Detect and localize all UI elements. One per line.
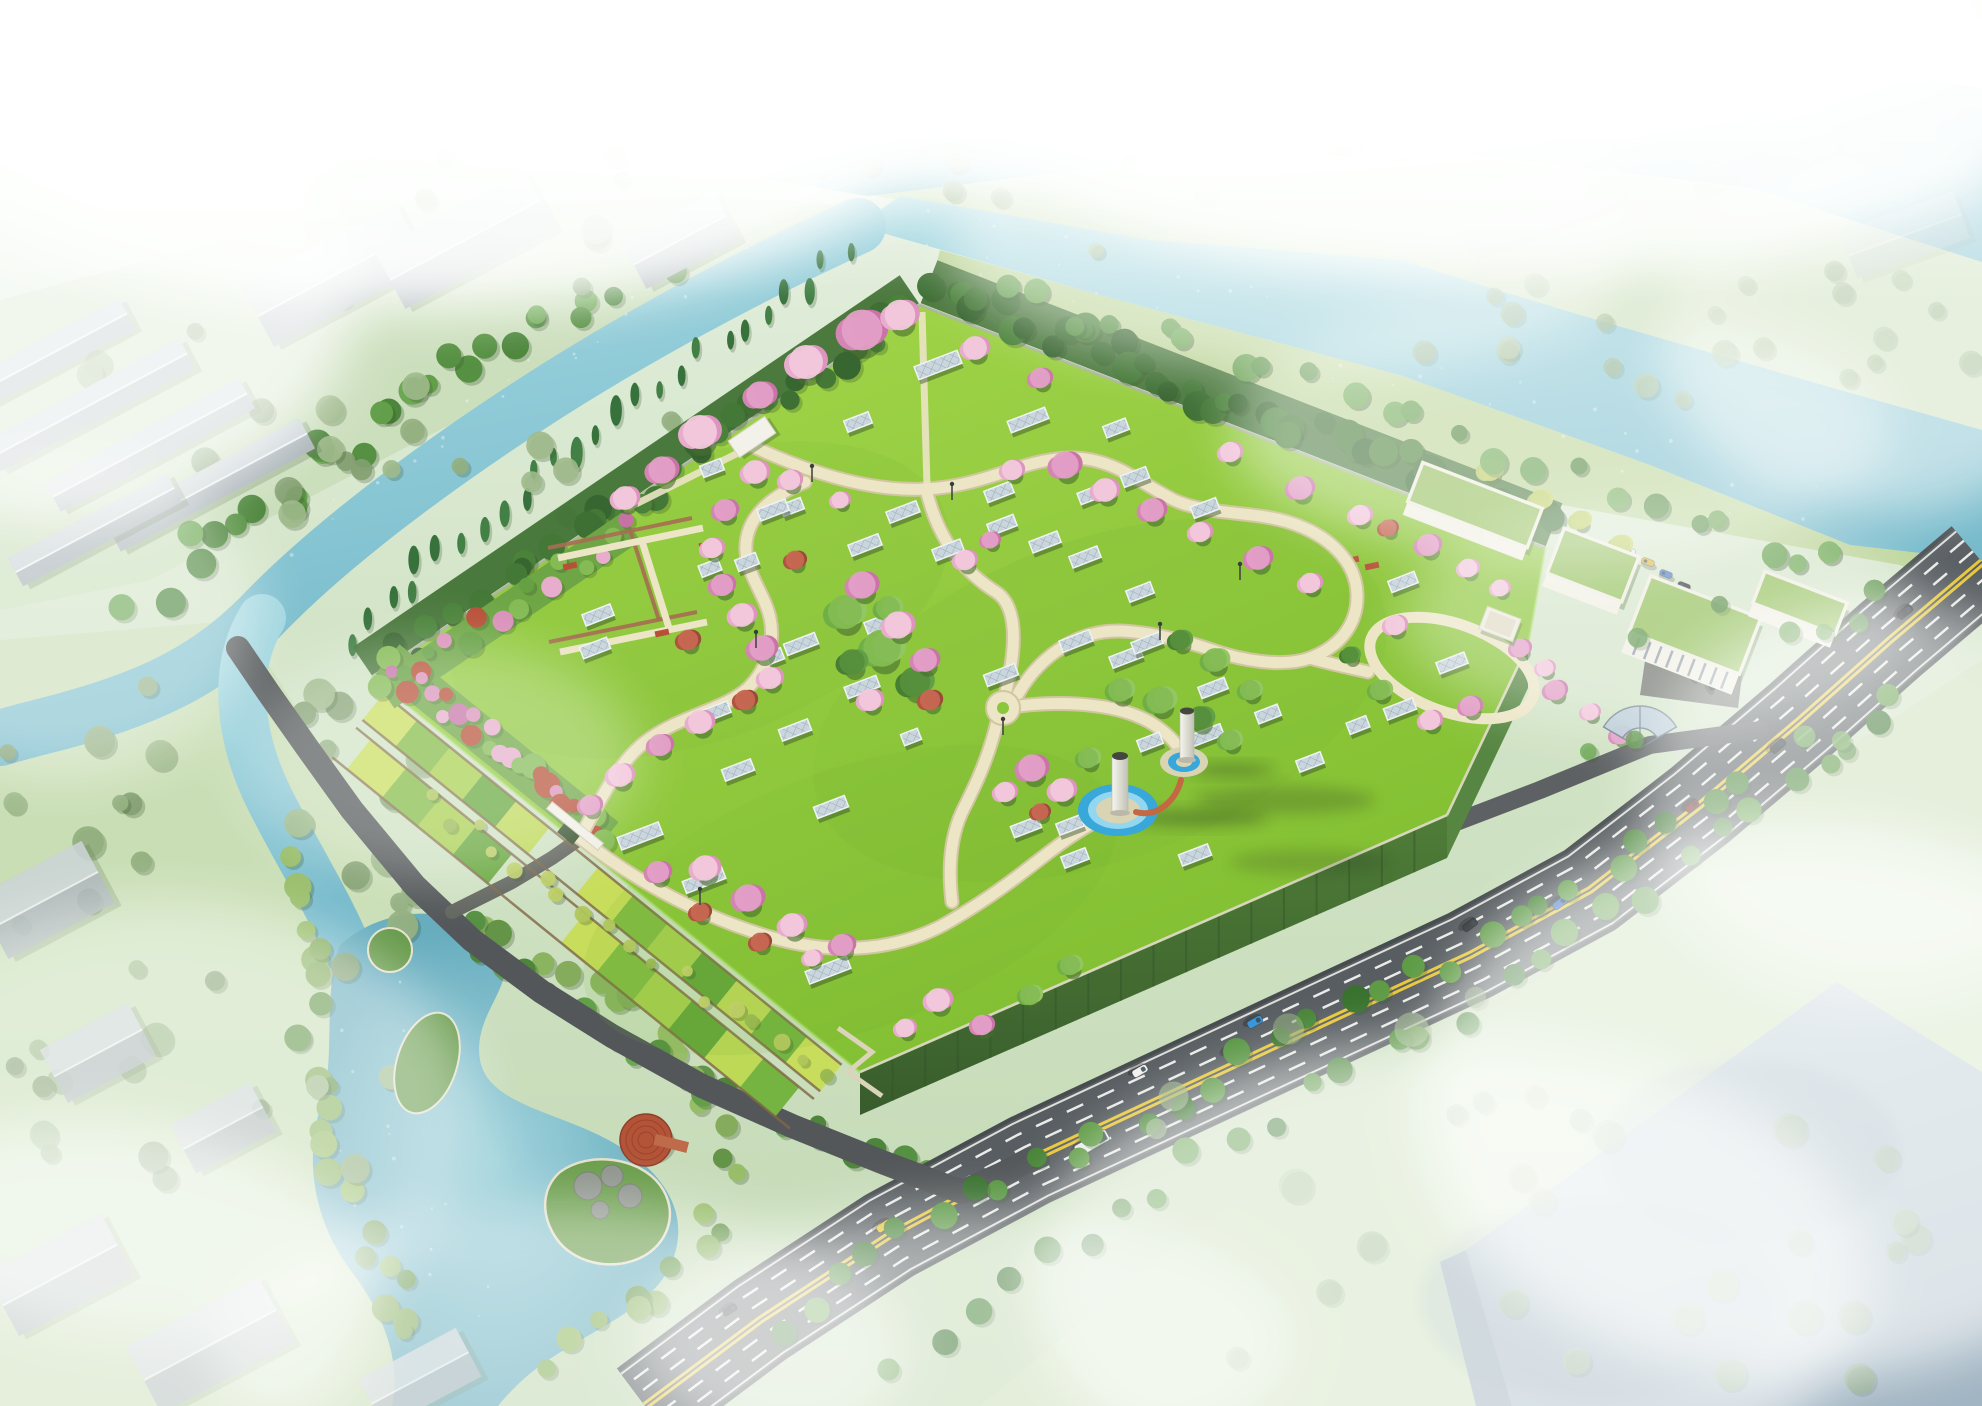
scene-svg	[0, 0, 1982, 1406]
aerial-render	[0, 0, 1982, 1406]
global-haze	[0, 0, 1982, 1406]
haze-layer	[0, 0, 1982, 1406]
